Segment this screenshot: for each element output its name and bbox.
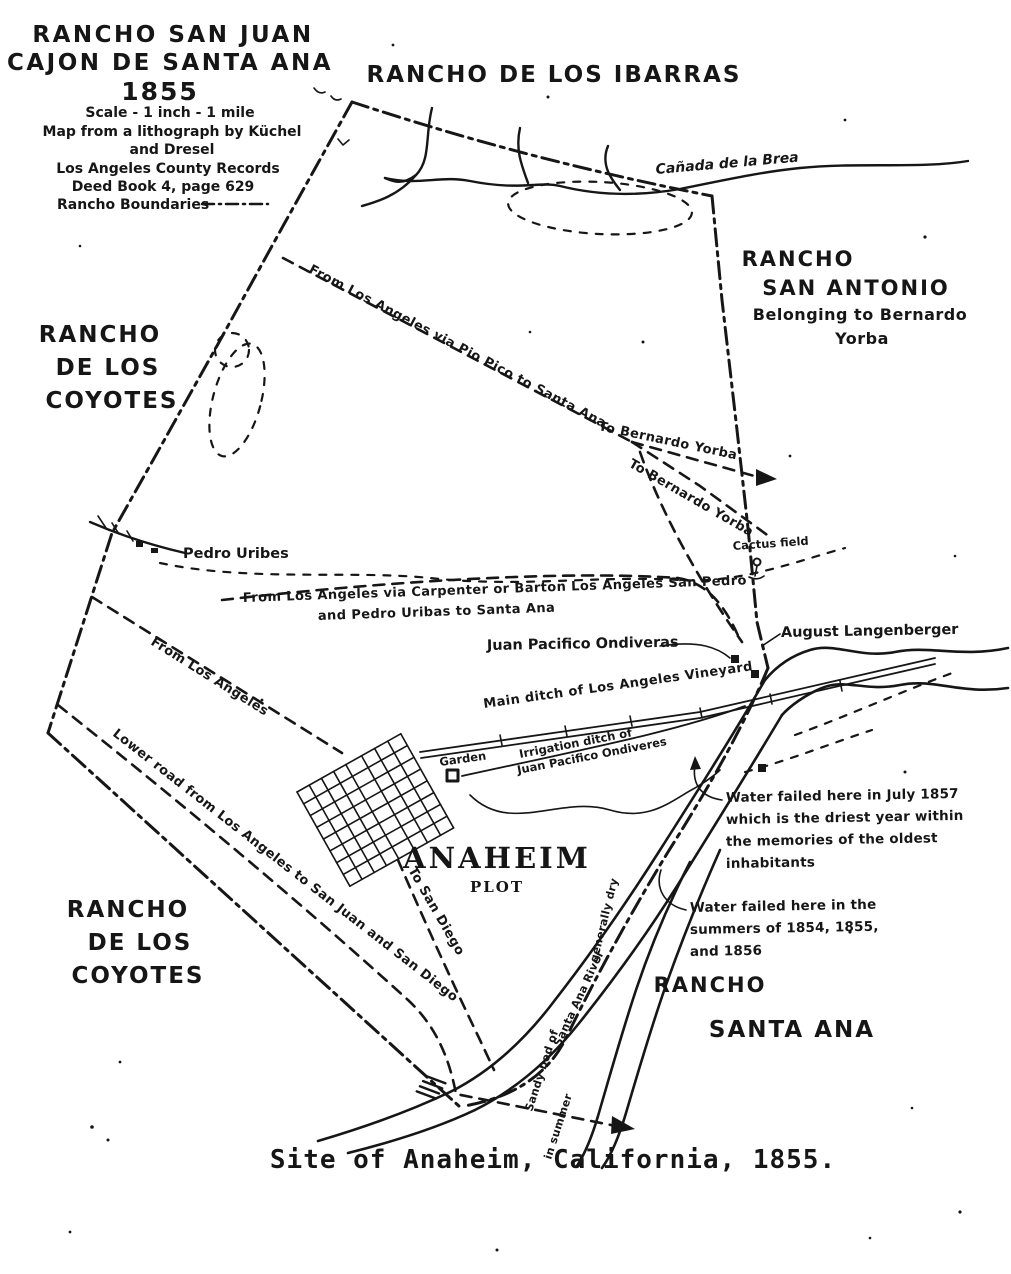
anaheim-label: ANAHEIM	[402, 841, 591, 875]
rancho-coyotes-nw-line2: DE LOS	[56, 355, 161, 381]
rancho-san-antonio-line2: SAN ANTONIO	[762, 276, 950, 300]
august-langenberger-label: August Langenberger	[781, 622, 960, 641]
road-label-carpenter-line2: and Pedro Uribas to Santa Ana	[318, 601, 556, 624]
road-label-bernardo-yorba-2: To Bernardo Yorba	[626, 456, 756, 540]
marsh-west-small	[215, 333, 249, 367]
source-note-4: Deed Book 4, page 629	[72, 179, 255, 195]
source-note-3: Los Angeles County Records	[56, 161, 280, 177]
title-block: RANCHO SAN JUAN CAJON DE SANTA ANA 1855 …	[7, 22, 333, 213]
rancho-san-antonio-line3: Belonging to Bernardo	[753, 305, 967, 324]
map-caption: Site of Anaheim, California, 1855.	[270, 1145, 836, 1175]
streams	[314, 88, 968, 206]
rancho-coyotes-sw-line3: COYOTES	[72, 963, 205, 989]
garden-label: Garden	[438, 749, 487, 769]
map-title-year: 1855	[121, 77, 199, 106]
rancho-ibarras-label: RANCHO DE LOS IBARRAS	[367, 62, 742, 88]
legend-boundaries-label: Rancho Boundaries	[57, 197, 209, 213]
rancho-coyotes-sw-line1: RANCHO	[67, 897, 189, 923]
source-note-1: Map from a lithograph by Küchel	[43, 124, 302, 140]
river-east-channel-east-bank	[602, 850, 720, 1168]
juan-pacifico-ondiveras-label: Juan Pacifico Ondiveras	[486, 635, 679, 654]
river-label-part3: generally dry	[587, 877, 621, 964]
rancho-santa-ana-line2: SANTA ANA	[709, 1017, 875, 1043]
river-upper-bank-south	[782, 683, 1008, 715]
scale-note: Scale - 1 inch - 1 mile	[85, 105, 254, 121]
road-label-bernardo-yorba-1: To Bernardo Yorba	[597, 419, 738, 463]
road-labels: From Los Angeles via Pio Pico to Santa A…	[110, 262, 756, 1005]
note-1854-line2: summers of 1854, 1855,	[690, 919, 879, 938]
cactus-field-symbol	[754, 559, 761, 566]
rancho-san-antonio-line1: RANCHO	[742, 247, 855, 271]
pedro-uribes-label: Pedro Uribes	[183, 546, 289, 562]
canada-de-la-brea-label: Cañada de la Brea	[655, 150, 799, 178]
road-label-from-los-angeles: From Los Angeles	[148, 635, 271, 720]
rancho-coyotes-nw-line3: COYOTES	[46, 388, 179, 414]
map-title-line1: RANCHO SAN JUAN	[32, 22, 313, 48]
rancho-coyotes-sw-line2: DE LOS	[88, 930, 193, 956]
note-1857-line2: which is the driest year within	[726, 808, 964, 828]
map-scan: RANCHO SAN JUAN CAJON DE SANTA ANA 1855 …	[0, 0, 1011, 1274]
note-1857-arrowhead	[690, 756, 701, 770]
langenberger-label-connector	[762, 634, 780, 646]
main-ditch-label: Main ditch of Los Angeles Vineyard	[482, 659, 753, 712]
stream-tributary-1	[518, 128, 528, 183]
creek-below-plot	[470, 770, 720, 813]
scrub-river-east-1	[795, 672, 955, 735]
feature-labels: Cañada de la Brea Pedro Uribes Juan Paci…	[183, 150, 959, 1161]
note-1857-line4: inhabitants	[726, 854, 815, 872]
pedro-uribes-area	[90, 516, 185, 553]
garden-square	[447, 770, 458, 781]
rancho-coyotes-nw-line1: RANCHO	[39, 322, 161, 348]
pedro-uribes-outbuilding	[151, 548, 158, 553]
water-notes: Water failed here in July 1857 which is …	[690, 786, 964, 960]
note-1854-line3: and 1856	[690, 943, 763, 960]
map-title-line2: CAJON DE SANTA ANA	[7, 50, 333, 76]
santa-ana-river	[318, 648, 1008, 1168]
source-note-2: and Dresel	[130, 142, 215, 158]
anaheim-plot-label: PLOT	[470, 878, 524, 896]
rancho-san-antonio-line4: Yorba	[834, 329, 889, 348]
road-label-to-san-diego: To San Diego	[405, 865, 468, 959]
note-1857-line3: the memories of the oldest	[726, 830, 938, 850]
note-1857-line1: Water failed here in July 1857	[726, 786, 959, 806]
rancho-santa-ana-line1: RANCHO	[654, 973, 767, 997]
road-label-pio-pico: From Los Angeles via Pio Pico to Santa A…	[306, 262, 609, 431]
vineyard-house	[758, 764, 766, 772]
arrowhead-bernardo-yorba	[756, 469, 777, 486]
pedro-uribes-house	[136, 541, 143, 547]
note-1854-line1: Water failed here in the	[690, 897, 877, 916]
map-svg: RANCHO SAN JUAN CAJON DE SANTA ANA 1855 …	[0, 0, 1011, 1274]
